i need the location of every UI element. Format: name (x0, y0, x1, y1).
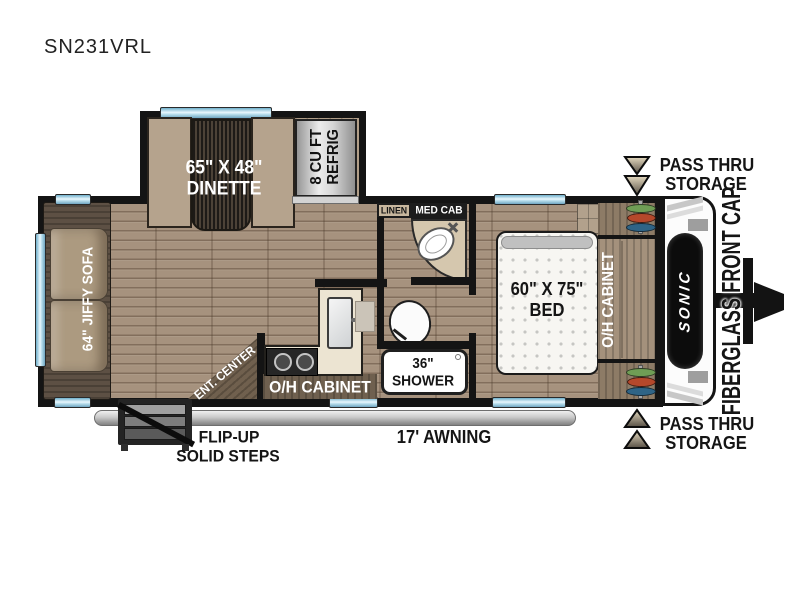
front-cap-label: FIBERGLASS FRONT CAP (718, 187, 744, 416)
window-top-bedroom (494, 194, 566, 205)
pass-thru-arrow-up-icon (621, 408, 653, 450)
cap-stripe (688, 371, 708, 383)
shower-drain (455, 354, 461, 360)
cooktop-burner-right (296, 353, 314, 371)
sofa-label: 64" JIFFY SOFA (81, 247, 96, 351)
storage-gear-bottom (624, 362, 660, 402)
bath-wall-right-lower (469, 333, 476, 399)
steps-label-line1: FLIP-UP (199, 429, 260, 446)
floorplan-canvas: SN231VRL 65" X 48" DINETTE 8 CU FT REFRI… (0, 0, 800, 600)
window-bottom-bedroom (492, 397, 566, 408)
refrigerator-name-label: REFRIG (326, 102, 343, 212)
cap-stripe (688, 219, 708, 231)
hitch-coupler-icon (754, 282, 784, 322)
refrigerator-size-label: 8 CU FT (309, 102, 326, 212)
pass-thru-arrow-down-icon (621, 155, 653, 197)
steps-label-line2: SOLID STEPS (176, 448, 279, 465)
bed-pillow (501, 236, 593, 249)
window-bottom-rear (54, 397, 91, 408)
gear-item-green-icon (626, 368, 656, 377)
headboard-shelf (577, 204, 599, 234)
gear-item-green-icon (626, 204, 656, 213)
cabinet-seam (621, 241, 623, 358)
med-cab-label: MED CAB (415, 206, 462, 217)
bath-divider-wall (411, 277, 476, 285)
bath-wall-left-lower (377, 287, 384, 349)
bed-name-label: BED (530, 301, 565, 319)
pass-thru-top-line2: STORAGE (665, 175, 747, 193)
kitchen-sink (327, 297, 353, 349)
dinette-name-label: DINETTE (187, 180, 262, 199)
dinette-size-label: 65" X 48" (186, 159, 263, 178)
kitchen-divider-wall (315, 279, 387, 287)
cooktop-burner-left (274, 353, 292, 371)
shower-top-wall (377, 341, 470, 349)
brand-logo-label: SONIC (678, 269, 693, 334)
shower-size-label: 36" (412, 357, 433, 372)
awning-label: 17' AWNING (397, 428, 491, 446)
linen-label: LINEN (381, 206, 407, 216)
shower-name-label: SHOWER (392, 374, 454, 389)
gear-item-red-icon (627, 213, 656, 223)
gear-item-blue-icon (626, 223, 656, 232)
window-top-rear (55, 194, 91, 205)
bath-wall-left-upper (377, 217, 384, 281)
gear-item-blue-icon (626, 387, 656, 396)
pass-thru-top-line1: PASS THRU (660, 156, 754, 174)
bath-door (355, 301, 375, 332)
bed-size-label: 60" X 75" (511, 280, 584, 298)
storage-gear-top (624, 198, 660, 238)
window-rear (35, 233, 46, 367)
pass-thru-bottom-line2: STORAGE (665, 434, 747, 452)
gear-item-red-icon (627, 377, 656, 387)
bedroom-cabinet-label: O/H CABINET (601, 252, 617, 348)
step-foot (121, 444, 128, 451)
kitchen-cabinet-label: O/H CABINET (269, 379, 371, 396)
pass-thru-bottom-line1: PASS THRU (660, 415, 754, 433)
model-label: SN231VRL (44, 36, 152, 59)
